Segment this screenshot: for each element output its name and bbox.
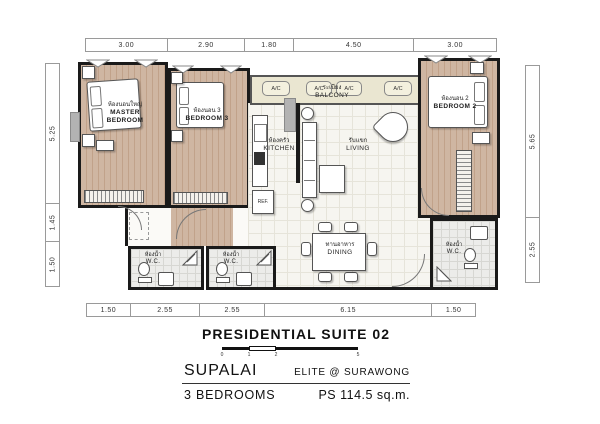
scale-tick-5: 5 — [357, 352, 360, 358]
bench — [472, 132, 490, 144]
balcony-label: ระเบียง BALCONY — [300, 85, 364, 100]
master-bedroom-label: ห้องนอนใหญ่ MASTER BEDROOM — [90, 102, 160, 125]
nightstand — [82, 134, 95, 147]
ac-label: A/C — [271, 86, 280, 92]
scale-bar-segments — [222, 346, 358, 352]
dim-bottom-3: 2.55 — [200, 304, 265, 316]
ac-unit: A/C — [384, 81, 412, 96]
sink-icon — [470, 226, 488, 240]
dim-left-2-value: 1.45 — [49, 215, 56, 231]
dimension-bar-left: 5.25 1.45 1.50 — [45, 63, 60, 287]
dim-right-2-value: 2.55 — [529, 242, 536, 258]
window-icon — [424, 51, 448, 69]
wc3-label-en: W.C. — [434, 249, 474, 256]
wc1-label-en: W.C. — [132, 259, 174, 266]
living-label-en: LIVING — [333, 145, 383, 153]
wc1-label-thai: ห้องน้ำ — [132, 252, 174, 259]
floor-plan-sheet: 3.00 2.90 1.80 4.50 3.00 5.25 1.45 1.50 … — [0, 0, 600, 424]
dining-label-thai: ทานอาหาร — [313, 242, 367, 249]
dining-chair — [318, 222, 332, 232]
plan-title: PRESIDENTIAL SUITE 02 — [180, 326, 412, 342]
stove — [254, 152, 265, 165]
dimension-bar-right: 5.65 2.55 — [525, 65, 540, 283]
bedroom2-label: ห้องนอน 2 BEDROOM 2 — [426, 96, 484, 111]
dim-top-2: 2.90 — [168, 39, 246, 51]
nightstand — [470, 62, 484, 74]
dining-label: ทานอาหาร DINING — [313, 242, 367, 257]
dim-right-1: 5.65 — [526, 66, 539, 218]
shower-icon — [436, 266, 452, 287]
sofa-cushion-line — [304, 160, 315, 161]
pillow-icon — [179, 87, 189, 105]
living-label: รับแขก LIVING — [333, 138, 383, 153]
master-wardrobe — [84, 190, 144, 203]
side-table — [301, 107, 314, 120]
living-label-thai: รับแขก — [333, 138, 383, 145]
dim-top-5: 3.00 — [414, 39, 496, 51]
dining-chair — [344, 272, 358, 282]
dimension-bar-top: 3.00 2.90 1.80 4.50 3.00 — [85, 38, 497, 52]
dim-bottom-2: 2.55 — [131, 304, 201, 316]
sofa-cushion-line — [304, 180, 315, 181]
dim-top-3: 1.80 — [245, 39, 294, 51]
sofa-cushion-line — [304, 140, 315, 141]
dim-left-2: 1.45 — [46, 204, 59, 243]
dim-top-4: 4.50 — [294, 39, 414, 51]
ac-unit: A/C — [262, 81, 290, 96]
ac-label: A/C — [393, 86, 402, 92]
master-bedroom-label-en2: BEDROOM — [90, 117, 160, 125]
scale-segment — [222, 347, 249, 350]
hall-closet — [129, 212, 149, 240]
shower-icon — [256, 250, 272, 271]
wc3-label-thai: ห้องน้ำ — [434, 242, 474, 249]
wc2-label: ห้องน้ำ W.C. — [210, 252, 252, 266]
dining-label-en: DINING — [313, 249, 367, 257]
balcony-label-thai: ระเบียง — [300, 85, 364, 92]
dim-bottom-4: 6.15 — [265, 304, 432, 316]
scale-bar: 0 1 2 5 — [222, 346, 358, 358]
dim-right-1-value: 5.65 — [529, 133, 536, 149]
scale-segment — [249, 346, 276, 351]
wc2-label-thai: ห้องน้ำ — [210, 252, 252, 259]
nightstand — [82, 66, 95, 79]
refrigerator: REF. — [252, 190, 274, 214]
dining-chair — [344, 222, 358, 232]
dim-left-3: 1.50 — [46, 242, 59, 286]
sofa — [302, 122, 317, 198]
master-bedroom-label-en1: MASTER — [90, 109, 160, 117]
unit-area: PS 114.5 sq.m. — [180, 388, 410, 402]
wc3-label: ห้องน้ำ W.C. — [434, 242, 474, 256]
window-icon — [134, 55, 158, 73]
project-name: ELITE @ SURAWONG — [180, 367, 410, 378]
wc2-label-en: W.C. — [210, 259, 252, 266]
kitchen-label-en: KITCHEN — [258, 145, 300, 153]
dim-left-1-value: 5.25 — [49, 126, 56, 142]
scale-segment — [276, 347, 358, 350]
dim-top-1: 3.00 — [86, 39, 168, 51]
dim-right-2: 2.55 — [526, 218, 539, 282]
balcony-label-en: BALCONY — [300, 92, 364, 100]
dim-bottom-1: 1.50 — [87, 304, 131, 316]
bench — [96, 140, 114, 151]
window-icon — [220, 61, 242, 79]
bedroom3-label-en: BEDROOM 3 — [178, 115, 236, 123]
dining-chair — [367, 242, 377, 256]
nightstand — [171, 72, 183, 84]
bedroom3-label-thai: ห้องนอน 3 — [178, 108, 236, 115]
dining-chair — [301, 242, 311, 256]
structural-pillar — [284, 98, 296, 132]
bedroom3-label: ห้องนอน 3 BEDROOM 3 — [178, 108, 236, 123]
bedroom2-label-thai: ห้องนอน 2 — [426, 96, 484, 103]
dim-left-3-value: 1.50 — [49, 256, 56, 272]
refrigerator-label: REF. — [258, 199, 269, 205]
ottoman — [319, 165, 345, 193]
dining-chair — [318, 272, 332, 282]
dimension-bar-bottom: 1.50 2.55 2.55 6.15 1.50 — [86, 303, 476, 317]
wc1-label: ห้องน้ำ W.C. — [132, 252, 174, 266]
dim-left-1: 5.25 — [46, 64, 59, 204]
bedroom2-label-en: BEDROOM 2 — [426, 103, 484, 111]
master-bedroom-label-thai: ห้องนอนใหญ่ — [90, 102, 160, 109]
shower-icon — [182, 250, 198, 271]
bedroom2-wardrobe — [456, 150, 472, 212]
dim-bottom-5: 1.50 — [432, 304, 475, 316]
kitchen-label-thai: ห้องครัว — [258, 138, 300, 145]
scale-tick-0: 0 — [221, 352, 224, 358]
sink-icon — [158, 272, 174, 286]
scale-tick-1: 1 — [248, 352, 251, 358]
condenser-unit — [70, 112, 80, 142]
kitchen-label: ห้องครัว KITCHEN — [258, 138, 300, 153]
nightstand — [171, 130, 183, 142]
scale-tick-2: 2 — [275, 352, 278, 358]
side-table — [301, 199, 314, 212]
footer-divider — [182, 383, 410, 384]
sink-icon — [236, 272, 252, 286]
bedroom3-wardrobe — [173, 192, 228, 204]
dining-table: ทานอาหาร DINING — [312, 233, 366, 271]
